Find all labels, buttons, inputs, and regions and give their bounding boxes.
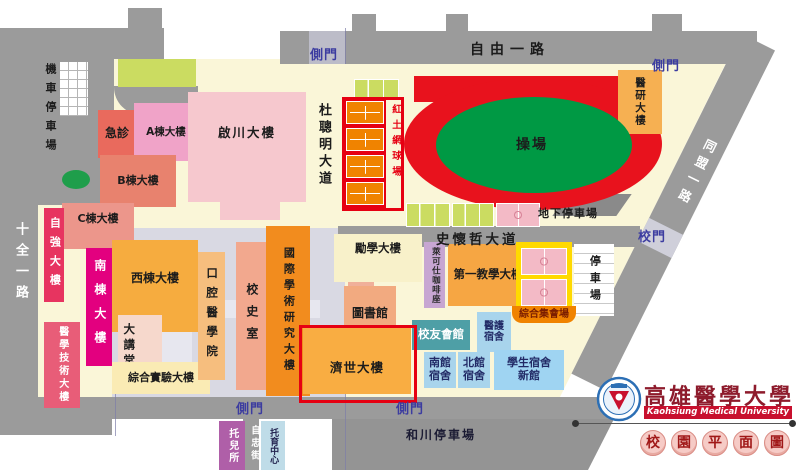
- building-label: 醫護宿舍: [483, 321, 505, 344]
- map-title-char: 面: [733, 430, 759, 456]
- building-dental-college: 口腔醫學院: [198, 252, 225, 380]
- university-name-banner: Kaohsiung Medical University: [644, 406, 792, 419]
- basketball-court: [521, 279, 567, 306]
- map-title-char: 園: [671, 430, 697, 456]
- building-lixue: 勵學大樓: [334, 234, 422, 282]
- building-new-student-dorm: 學生宿舍新館: [494, 350, 564, 390]
- building-south-dorm: 南館宿舍: [424, 352, 456, 388]
- university-seal-icon: [596, 376, 642, 422]
- building-label: 自強大樓: [48, 217, 61, 293]
- building-label: 醫學技術大樓: [56, 326, 68, 404]
- building-label: 啟川大樓: [218, 126, 276, 140]
- building-label: 托兒所: [226, 428, 238, 464]
- building-cafe: 萊可仕咖啡座: [424, 242, 445, 308]
- boundary-line: [115, 388, 116, 436]
- road-label-ducongming: 杜聰明大道: [314, 103, 333, 188]
- building-emergency: 急診: [98, 110, 136, 158]
- parking-lot-east: 停車場: [574, 244, 614, 316]
- area-label-clay-tennis: 紅土網球場: [388, 104, 402, 182]
- building-label: 校友會館: [418, 328, 464, 341]
- building-label: 南棟大樓: [92, 259, 106, 355]
- building-history-room: 校史室: [236, 242, 266, 390]
- building-label: 勵學大樓: [355, 242, 401, 255]
- legend-divider: [576, 423, 794, 424]
- building-label: 北館宿舍: [462, 357, 486, 382]
- assembly-hall-strip: 綜合集會場: [512, 306, 576, 323]
- green-court: [452, 203, 494, 227]
- map-title-char: 校: [640, 430, 666, 456]
- basketball-court: [496, 203, 540, 227]
- area-label-underground-parking: 地下停車場: [538, 205, 598, 221]
- building-label: 南館宿舍: [428, 357, 452, 382]
- university-seal: [596, 376, 642, 422]
- tennis-court: [346, 155, 384, 178]
- road-label-ziyou: 自由一路: [470, 39, 550, 59]
- building-label: 綜合集會場: [519, 309, 569, 321]
- tennis-court: [346, 128, 384, 151]
- building-label: 托育中心: [268, 428, 278, 464]
- building-label: 國際學術研究大樓: [282, 247, 295, 375]
- area-label-hechuan-parking: 和川停車場: [406, 426, 476, 443]
- building-label: 萊可仕咖啡座: [430, 247, 440, 304]
- road-ziyou-stub: [652, 14, 682, 32]
- boundary-line: [345, 28, 346, 64]
- building-integrated-lab: 綜合實驗大樓: [112, 362, 210, 394]
- building-label: 醫研大樓: [634, 77, 646, 127]
- university-name-en: Kaohsiung Medical University: [647, 408, 789, 418]
- building-label: B棟大樓: [117, 175, 158, 188]
- green-court: [406, 203, 450, 227]
- building-label: 西棟大樓: [131, 272, 179, 286]
- building-b: B棟大樓: [100, 155, 176, 207]
- green-patch: [118, 59, 196, 87]
- legend-divider-dot: [789, 420, 796, 427]
- gate-label-main: 校門: [638, 226, 666, 245]
- building-med-tech: 醫學技術大樓: [44, 322, 80, 408]
- building-nursery: 托兒所: [219, 421, 245, 470]
- building-label: A棟大樓: [146, 126, 186, 138]
- building-label: 急診: [105, 127, 129, 141]
- building-south-wing: 南棟大樓: [86, 248, 112, 366]
- jishi-highlight-box: [299, 325, 417, 403]
- road-label-shiquan: 十全一路: [11, 222, 30, 306]
- building-label: 第一教學大樓: [454, 268, 523, 281]
- road-ziyou-stub: [352, 14, 376, 32]
- gate-label-side-nw: 側門: [310, 44, 338, 63]
- tennis-court: [346, 182, 384, 205]
- building-label: 綜合實驗大樓: [128, 372, 194, 385]
- tennis-court: [346, 101, 384, 124]
- building-nurse-dorm: 醫護宿舍: [477, 312, 511, 352]
- road-label-shihuaizhe: 史懷哲大道: [436, 228, 519, 248]
- building-med-research: 醫研大樓: [618, 70, 662, 134]
- map-title: 校 園 平 面 圖: [640, 430, 790, 456]
- area-label-track: 操場: [516, 134, 548, 154]
- map-title-char: 平: [702, 430, 728, 456]
- road-shiquan-corner: [0, 419, 112, 435]
- gate-label-side-s: 側門: [396, 398, 424, 417]
- building-ziqiang: 自強大樓: [44, 208, 64, 302]
- road-label-zizhong: 自忠街: [247, 425, 261, 463]
- building-qichuan-step: [220, 200, 280, 220]
- motorcycle-grid: [60, 62, 88, 116]
- green-oval: [62, 170, 90, 189]
- area-label-motorcycle-parking: 機車停車場: [42, 63, 58, 158]
- building-label: 校史室: [244, 283, 258, 349]
- building-label: 口腔醫學院: [205, 267, 218, 365]
- building-label: C棟大樓: [77, 213, 118, 226]
- legend-divider-dot: [572, 420, 579, 427]
- green-court: [354, 79, 399, 99]
- boundary-line: [345, 392, 346, 470]
- road-top-left-stub: [128, 8, 162, 30]
- gate-label-side-sw: 側門: [236, 398, 264, 417]
- basketball-court: [521, 248, 567, 275]
- building-childcare-center: 托育中心: [261, 421, 285, 470]
- building-north-dorm: 北館宿舍: [458, 352, 490, 388]
- area-label-parking: 停車場: [588, 255, 601, 306]
- gate-label-side-ne: 側門: [652, 55, 680, 74]
- campus-map: 同盟一路 紅土網球場 操場 地下停車場 急診 A棟大樓 B棟大樓 C棟大樓 啟川…: [0, 0, 800, 470]
- building-alumni-house: 校友會館: [412, 320, 470, 350]
- road-ziyou-stub: [446, 14, 468, 32]
- building-qichuan: 啟川大樓: [188, 92, 306, 202]
- building-label: 學生宿舍新館: [505, 357, 553, 382]
- map-title-char: 圖: [764, 430, 790, 456]
- building-label: 圖書館: [352, 307, 388, 321]
